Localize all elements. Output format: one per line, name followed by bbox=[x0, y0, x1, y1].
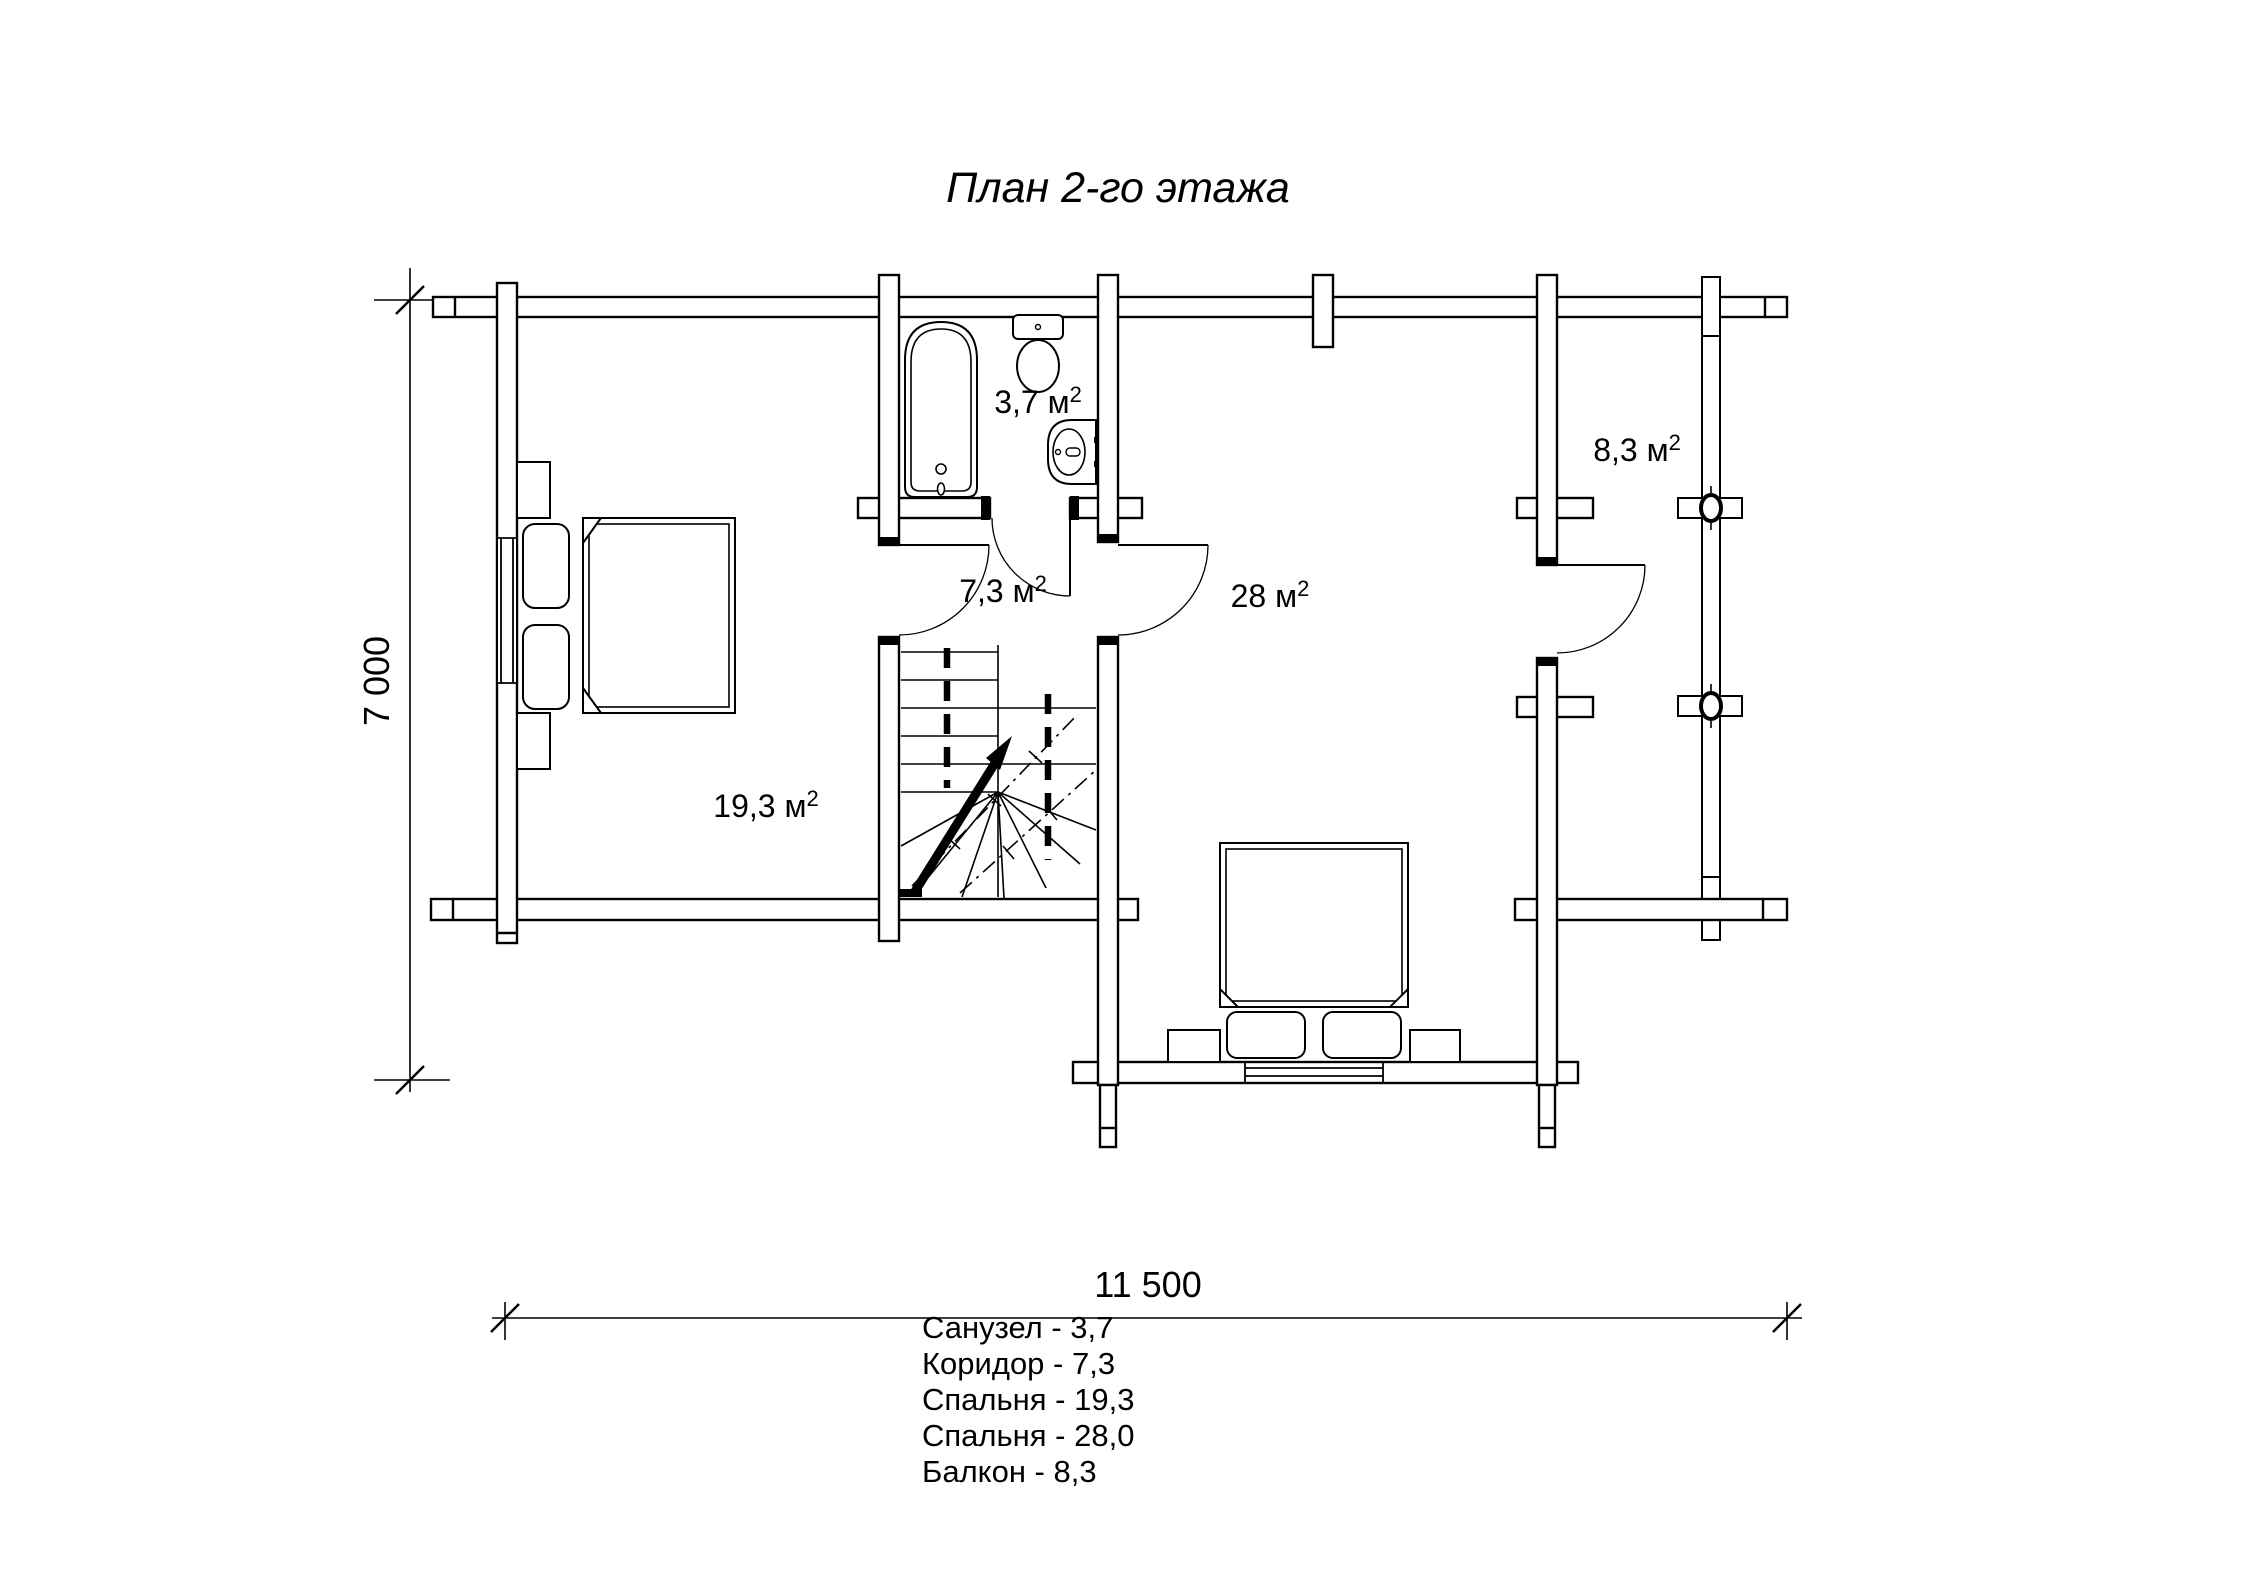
room-labels: 3,7 м2 7,3 м2 28 м2 8,3 м2 19,3 м2 bbox=[713, 382, 1681, 824]
bed-small-bedroom bbox=[517, 462, 735, 769]
legend-item: Балкон - 8,3 bbox=[922, 1454, 1097, 1489]
nightstand bbox=[1168, 1030, 1220, 1062]
dimension-width-label: 11 500 bbox=[1094, 1264, 1201, 1305]
wall-bathroom-south-a bbox=[858, 498, 990, 518]
room-label-corridor: 7,3 м2 bbox=[959, 571, 1047, 609]
stair-direction-arrow bbox=[898, 736, 1012, 893]
legend-item: Спальня - 28,0 bbox=[922, 1418, 1134, 1453]
legend: Санузел - 3,7 Коридор - 7,3 Спальня - 19… bbox=[922, 1310, 1134, 1489]
toilet bbox=[1013, 315, 1063, 392]
pillow bbox=[523, 625, 569, 709]
wall-bottom-left bbox=[431, 899, 1138, 920]
room-label-balcony: 8,3 м2 bbox=[1593, 430, 1681, 468]
room-label-bathroom: 3,7 м2 bbox=[994, 382, 1082, 420]
bathtub bbox=[905, 322, 977, 497]
staircase bbox=[898, 645, 1096, 898]
door-large-bedroom bbox=[1118, 545, 1208, 635]
wall-stair-east bbox=[1098, 637, 1118, 1085]
nightstand bbox=[517, 713, 550, 769]
sink bbox=[1048, 420, 1099, 484]
balcony-railing bbox=[1702, 277, 1720, 940]
nightstand bbox=[517, 462, 550, 518]
room-label-bedroom-large: 28 м2 bbox=[1231, 576, 1310, 614]
log-post-marker-upper bbox=[1701, 495, 1721, 521]
floor-plan-drawing: 7 000 11 500 3,7 м2 7,3 м2 28 м2 8,3 м2 … bbox=[0, 0, 2245, 1587]
legend-item: Спальня - 19,3 bbox=[922, 1382, 1134, 1417]
legend-item: Санузел - 3,7 bbox=[922, 1310, 1113, 1345]
wall-balcony-west-upper bbox=[1537, 275, 1557, 565]
log-post-marker-lower bbox=[1701, 693, 1721, 719]
floor-plan-page: 7 000 11 500 3,7 м2 7,3 м2 28 м2 8,3 м2 … bbox=[0, 0, 2245, 1587]
nightstand bbox=[1410, 1030, 1460, 1062]
bay-post-west bbox=[1100, 1085, 1116, 1147]
pillow bbox=[1227, 1012, 1305, 1058]
page-title: План 2-го этажа bbox=[946, 164, 1290, 212]
pillow bbox=[1323, 1012, 1401, 1058]
wall-stair-west bbox=[879, 637, 899, 941]
dimension-width bbox=[491, 1302, 1802, 1340]
room-label-bedroom-small: 19,3 м2 bbox=[713, 786, 818, 824]
wall-top-log-stub bbox=[1313, 275, 1333, 347]
door-balcony bbox=[1557, 565, 1645, 653]
wall-balcony-west-lower bbox=[1537, 658, 1557, 1085]
bay-post-east bbox=[1539, 1085, 1555, 1147]
window-bay-south bbox=[1245, 1063, 1383, 1082]
dimension-height-label: 7 000 bbox=[356, 636, 397, 726]
wall-bathroom-west bbox=[879, 275, 899, 545]
legend-item: Коридор - 7,3 bbox=[922, 1346, 1115, 1381]
pillow bbox=[523, 524, 569, 608]
window-left-wall bbox=[497, 538, 517, 683]
bed-large-bedroom bbox=[1168, 843, 1460, 1062]
wall-bathroom-east bbox=[1098, 275, 1118, 542]
